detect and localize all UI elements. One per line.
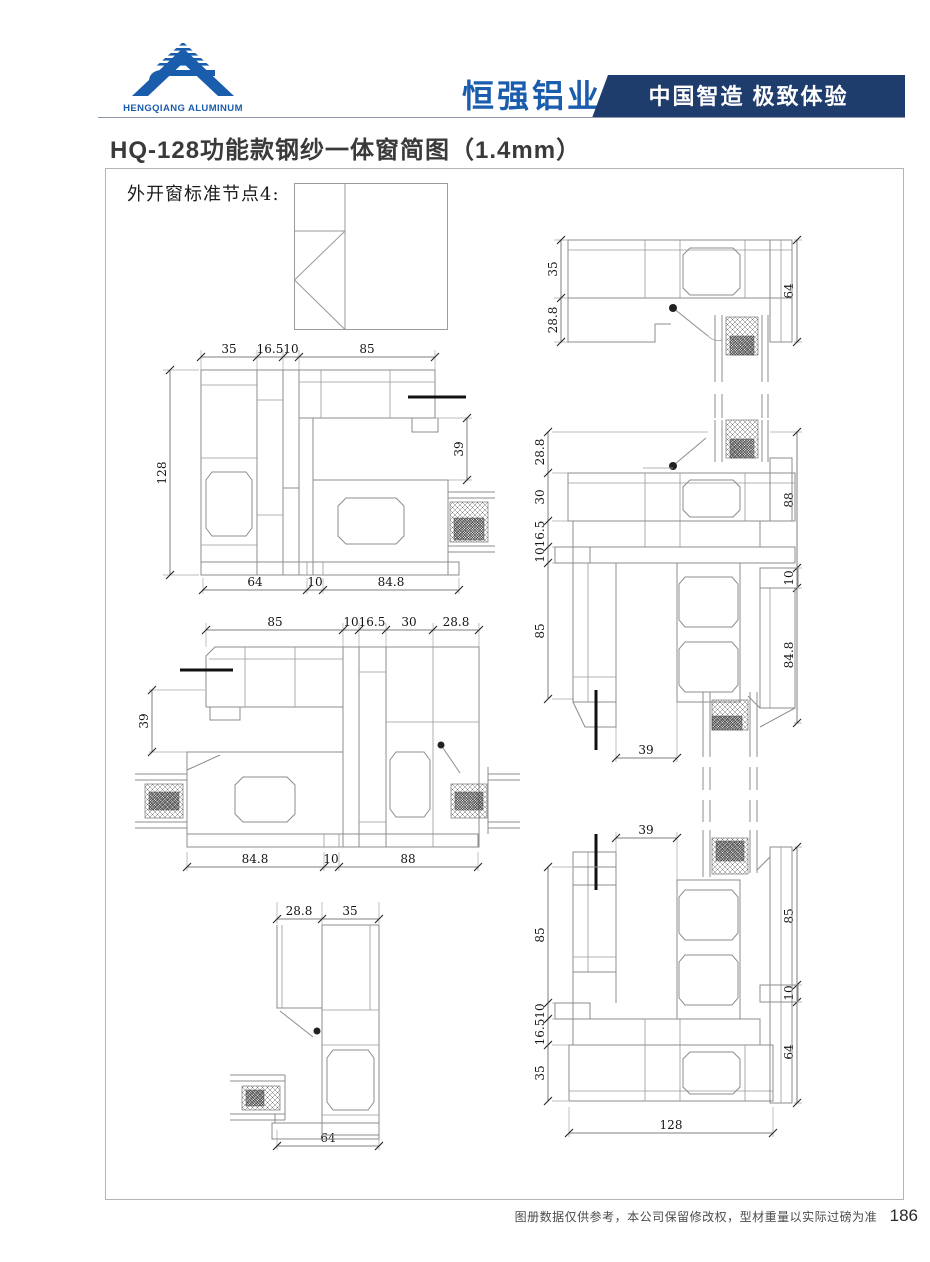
drawing-top-left: 35 16.5 10 85 128 39 64 10 84.8 [150, 340, 500, 610]
gasket-dot [438, 742, 445, 749]
page-number: 186 [890, 1206, 918, 1225]
dim-label: 85 [533, 623, 547, 638]
dim-label: 39 [137, 713, 151, 728]
dim-label: 28.8 [443, 615, 470, 629]
dim-label: 85 [533, 927, 547, 942]
profile-sill [555, 800, 798, 1103]
footer-disclaimer: 图册数据仅供参考，本公司保留修改权，型材重量以实际过磅为准 [515, 1210, 878, 1224]
dim-label: 88 [400, 852, 415, 866]
dim-label: 128 [660, 1118, 683, 1132]
footer: 图册数据仅供参考，本公司保留修改权，型材重量以实际过磅为准 186 [105, 1206, 918, 1226]
dim-label: 28.8 [533, 439, 547, 466]
dim-label: 39 [638, 743, 653, 757]
dim-label: 128 [155, 462, 169, 485]
dim-label: 10 [283, 342, 298, 356]
gasket-dot [669, 462, 677, 470]
dim-label: 10 [782, 570, 796, 585]
dim-label: 84.8 [242, 852, 269, 866]
dimensions: 85 10 16.5 30 28.8 39 84.8 10 88 [137, 615, 483, 871]
profile-head [568, 240, 792, 418]
dim-label: 85 [782, 908, 796, 923]
catalog-page: HENGQIANG ALUMINUM 恒强铝业 中国智造 极致体验 HQ-128… [0, 0, 930, 1262]
dim-label: 10 [307, 575, 322, 589]
profile-section [201, 370, 495, 575]
dim-label: 85 [359, 342, 374, 356]
dimensions: 28.8 35 64 [273, 902, 383, 1150]
drawing-bottom-center: 28.8 35 64 [230, 890, 430, 1175]
dim-label: 10 [533, 1003, 547, 1018]
drawing-right-column: 35 28.8 64 28.8 30 16.5 [530, 222, 820, 1147]
gasket-dot [669, 304, 677, 312]
dim-label: 35 [342, 904, 357, 918]
dim-label: 88 [782, 492, 796, 507]
logo-triangle-icon: HENGQIANG ALUMINUM [118, 42, 248, 118]
dim-label: 28.8 [286, 904, 313, 918]
brand-name: 恒强铝业 [462, 74, 602, 118]
dim-label: 64 [320, 1131, 336, 1145]
dim-label: 16.5 [533, 1019, 547, 1046]
dim-label: 16.5 [533, 521, 547, 548]
window-schematic [294, 183, 448, 330]
logo-subtext: HENGQIANG ALUMINUM [123, 103, 243, 114]
dim-label: 30 [533, 489, 547, 504]
dim-label: 64 [782, 1044, 796, 1060]
dim-label: 16.5 [359, 615, 386, 629]
dim-label: 64 [247, 575, 263, 589]
dim-label: 35 [221, 342, 236, 356]
gasket-dot [314, 1028, 321, 1035]
profile-section [230, 925, 379, 1139]
dim-label: 16.5 [257, 342, 284, 356]
dim-label: 39 [452, 441, 466, 456]
dim-label: 10 [782, 985, 796, 1000]
dim-label: 84.8 [782, 642, 796, 669]
dim-label: 84.8 [378, 575, 405, 589]
dim-label: 30 [401, 615, 416, 629]
dim-label: 85 [267, 615, 282, 629]
dim-label: 28.8 [546, 307, 560, 334]
dim-label: 64 [782, 283, 796, 299]
dim-label: 35 [546, 261, 560, 276]
company-logo: HENGQIANG ALUMINUM [118, 42, 248, 118]
profile-section [135, 647, 520, 847]
dimensions-head: 35 28.8 64 [546, 236, 802, 346]
dim-label: 10 [323, 852, 338, 866]
slogan-banner: 中国智造 极致体验 [592, 75, 905, 118]
drawing-middle-left: 85 10 16.5 30 28.8 39 84.8 10 88 [135, 612, 520, 884]
dim-label: 10 [533, 547, 547, 562]
header-divider [98, 117, 905, 118]
dim-label: 35 [533, 1065, 547, 1080]
page-title: HQ-128功能款钢纱一体窗简图（1.4mm） [110, 130, 581, 165]
profile-transom [555, 420, 798, 790]
dim-label: 39 [638, 823, 653, 837]
node-label: 外开窗标准节点4: [127, 180, 280, 206]
dim-label: 10 [343, 615, 358, 629]
